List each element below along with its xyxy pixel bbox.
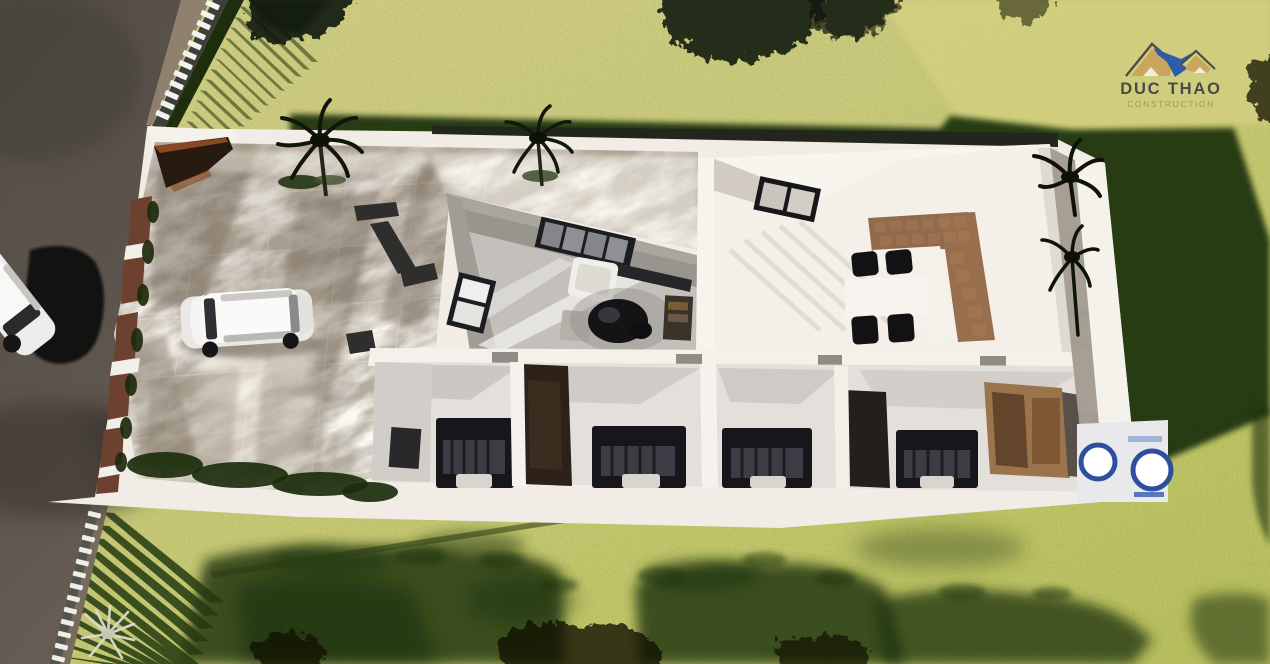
- svg-text:CONSTRUCTION: CONSTRUCTION: [1127, 99, 1215, 109]
- svg-text:DUC THAO: DUC THAO: [1120, 80, 1221, 98]
